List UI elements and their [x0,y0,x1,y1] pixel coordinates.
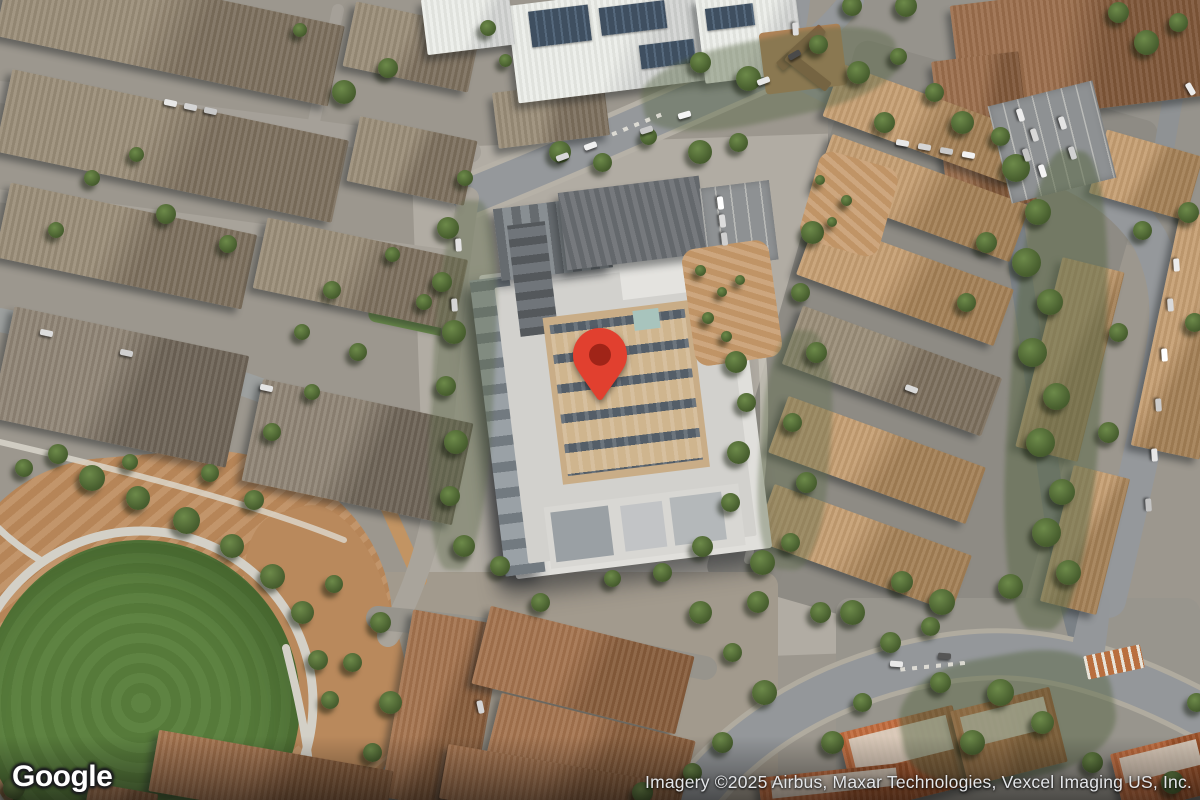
car [721,232,729,246]
car [1167,298,1174,311]
car [40,329,54,338]
car [940,147,954,155]
car [1068,146,1078,160]
car [184,103,198,112]
imagery-attribution: Imagery ©2025 Airbus, Maxar Technologies… [645,772,1192,793]
car [260,384,274,393]
car [962,151,976,159]
location-pin-icon[interactable] [573,328,627,400]
car [787,49,801,61]
car [677,110,691,119]
car [164,99,178,108]
car [719,214,727,228]
satellite-map-canvas[interactable]: Google Imagery ©2025 Airbus, Maxar Techn… [0,0,1200,800]
car [1151,448,1158,461]
car [1022,148,1032,162]
car [451,298,458,311]
car [1038,164,1048,178]
car [1155,398,1162,411]
pin-inner-dot [589,344,611,366]
car [792,22,799,35]
car [904,384,918,394]
car [938,653,951,660]
car [476,700,485,714]
google-logo[interactable]: Google [12,760,112,794]
car [890,661,903,668]
car [455,238,462,251]
car [1030,128,1040,142]
car [583,141,597,151]
vehicles [0,0,1200,800]
car [1145,498,1152,511]
car [120,349,134,358]
car [1058,116,1068,130]
car [717,196,725,210]
car [1185,82,1197,96]
car [918,143,932,151]
car [639,125,653,135]
car [756,76,770,86]
car [555,152,569,162]
car [1016,108,1026,122]
car [204,107,218,116]
car [1173,258,1180,271]
car [896,139,910,147]
car [1161,348,1168,361]
